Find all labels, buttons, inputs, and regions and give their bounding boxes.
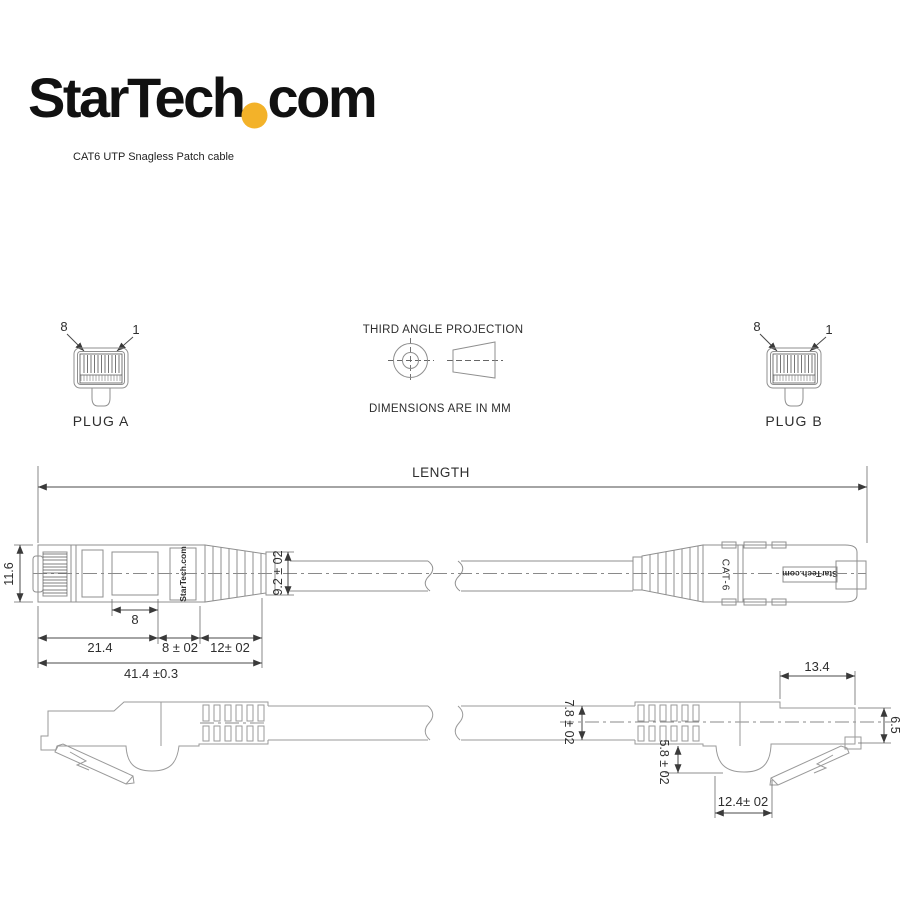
dim-boot-length: 12± 02 bbox=[210, 640, 250, 655]
brand-text-left: StarTech.com bbox=[178, 546, 188, 602]
dim-total-length: 41.4 ±0.3 bbox=[124, 666, 178, 681]
plug-b-label: PLUG B bbox=[765, 413, 822, 429]
length-dimension: LENGTH bbox=[38, 465, 867, 543]
dim-latch-width: 12.4± 02 bbox=[718, 794, 769, 809]
cat6-label: CAT-6 bbox=[720, 559, 731, 592]
projection-title: THIRD ANGLE PROJECTION bbox=[363, 324, 524, 336]
cable-break-left bbox=[425, 561, 433, 591]
latch-lever bbox=[55, 744, 134, 784]
plug-a-pin8-label: 8 bbox=[60, 319, 67, 334]
technical-drawing: 8 1 PLUG A THIRD ANGLE PROJECTION DIMENS… bbox=[0, 0, 900, 900]
projection-cone-symbol bbox=[447, 342, 503, 378]
cable-break-right bbox=[455, 706, 463, 740]
dim-mid-length: 8 ± 02 bbox=[162, 640, 198, 655]
dim-window-width: 8 bbox=[131, 612, 138, 627]
plug-b-pin8-label: 8 bbox=[753, 319, 760, 334]
plug-b-view: 8 1 PLUG B bbox=[753, 319, 832, 429]
dim-boot-height: 9.2 ± 02 bbox=[271, 550, 285, 595]
latch-view-cable bbox=[268, 706, 635, 740]
dim-body-length: 21.4 bbox=[87, 640, 112, 655]
plug-b-pin1-label: 1 bbox=[825, 322, 832, 337]
brand-text-right: StarTech.com bbox=[782, 569, 838, 579]
plug-a-pin1-label: 1 bbox=[132, 322, 139, 337]
cable-break-left bbox=[425, 706, 433, 740]
plug-nose-b bbox=[836, 561, 866, 589]
plug-a-neck bbox=[92, 388, 110, 406]
pin-block bbox=[43, 552, 67, 596]
dim-overall-height: 11.6 bbox=[2, 562, 16, 585]
dim-latch-depth: 5.8 ± 02 bbox=[657, 739, 671, 784]
plug-b-pins bbox=[777, 355, 812, 373]
side-view: StarTech.com CAT-6 bbox=[2, 542, 866, 681]
projection-circle-symbol bbox=[388, 338, 434, 383]
latch-view-left-connector bbox=[41, 702, 268, 784]
latch-view-dimensions: 7.8 ± 02 5.8 ± 02 12.4± 02 13.4 6.5 bbox=[562, 659, 900, 818]
latch-view: 7.8 ± 02 5.8 ± 02 12.4± 02 13.4 6.5 bbox=[41, 659, 900, 818]
side-view-cable bbox=[290, 561, 633, 591]
cable-break-right bbox=[455, 561, 463, 591]
plug-a-view: 8 1 PLUG A bbox=[60, 319, 139, 429]
units-note: DIMENSIONS ARE IN MM bbox=[369, 403, 511, 415]
dim-tip-height: 6.5 bbox=[888, 716, 900, 733]
plug-a-pins bbox=[84, 355, 119, 373]
length-label: LENGTH bbox=[412, 465, 470, 480]
dim-tip-length: 13.4 bbox=[804, 659, 829, 674]
plug-b-neck bbox=[785, 388, 803, 406]
side-view-dimensions: 11.6 9.2 ± 02 8 21.4 8 ± 02 12± 02 41.4 … bbox=[2, 545, 294, 681]
dim-cable-diameter: 7.8 ± 02 bbox=[562, 699, 576, 744]
plug-a-label: PLUG A bbox=[73, 413, 130, 429]
projection-block: THIRD ANGLE PROJECTION DIMENSIONS ARE IN… bbox=[363, 324, 524, 415]
latch-lever-b bbox=[770, 746, 849, 785]
strain-relief-slots-b bbox=[638, 705, 699, 741]
